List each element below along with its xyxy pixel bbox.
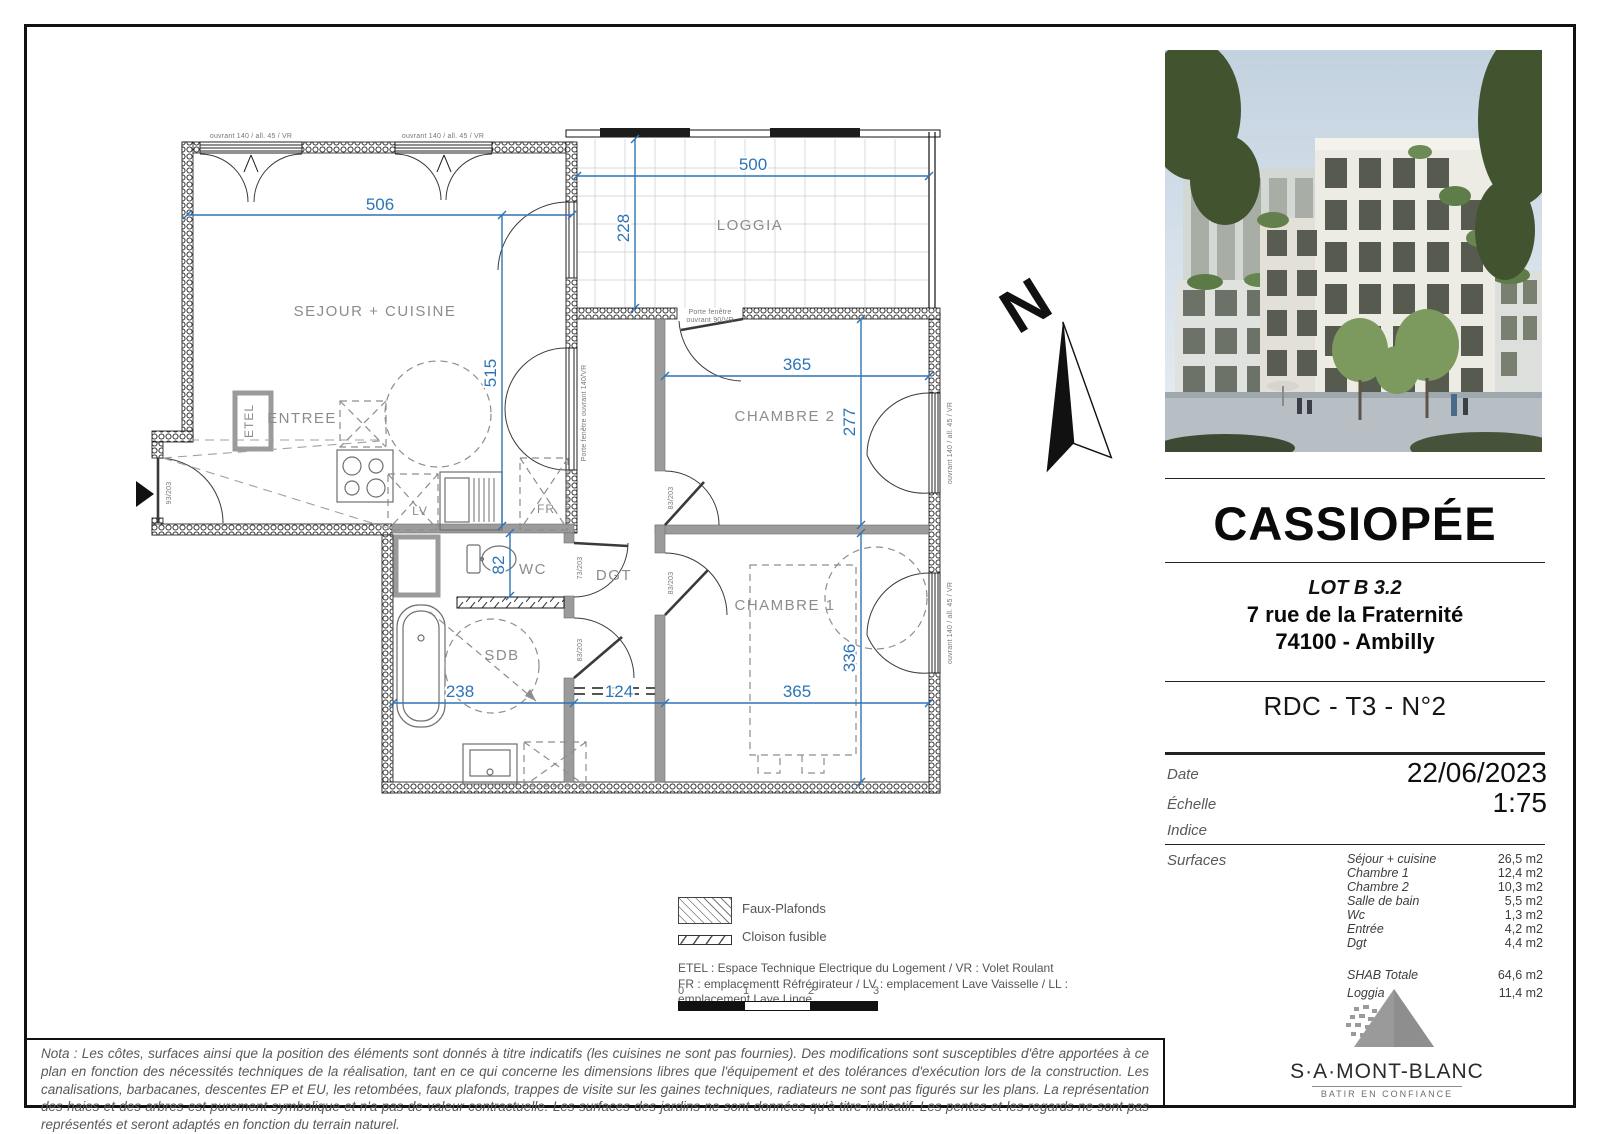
date-label: Date <box>1167 766 1199 783</box>
nota-disclaimer: Nota : Les côtes, surfaces ainsi que la … <box>27 1038 1165 1105</box>
dim-238: 238 <box>446 682 474 701</box>
room-label-entree: ENTREE <box>267 410 337 427</box>
builder-logo: S·A·MONT-BLANC BATIR EN CONFIANCE <box>1267 987 1507 1099</box>
room-label-sejour: SEJOUR + CUISINE <box>294 303 457 320</box>
pf90-label-line2: ouvrant 90/VR <box>686 317 733 324</box>
room-label-sdb: SDB <box>484 647 519 664</box>
room-label-etel: ETEL <box>242 404 256 438</box>
pf90-label-line1: Porte fenêtre <box>688 309 731 316</box>
dim-124: 124 <box>605 682 633 701</box>
divider <box>1165 478 1545 479</box>
divider <box>1165 752 1545 755</box>
lot-number: LOT B 3.2 <box>1165 577 1545 600</box>
room-label-wc: WC <box>519 561 547 578</box>
window-label-1: ouvrant 140 / all. 45 / VR <box>210 133 292 140</box>
dim-336: 336 <box>840 644 859 672</box>
floor-plan: LV FR SEJOUR + CUISIN <box>130 118 960 830</box>
bedroom-furniture <box>750 547 927 773</box>
legend-label: Cloison fusible <box>742 929 827 944</box>
exterior-walls <box>152 142 940 793</box>
legend-item-cloison: Cloison fusible <box>678 927 1138 951</box>
room-label-chambre1: CHAMBRE 1 <box>734 597 835 614</box>
entrance-arrow-icon <box>136 481 154 507</box>
dim-365-ch1: 365 <box>783 682 811 701</box>
scale-bar: 0 1 2 3 <box>678 985 898 1019</box>
dim-365-ch2: 365 <box>783 355 811 374</box>
room-label-loggia: LOGGIA <box>717 217 784 234</box>
index-label: Indice <box>1167 822 1207 839</box>
pf140-label: Porte fenêtre ouvrant 140/VR <box>581 365 588 462</box>
door-size-73: 73/203 <box>577 557 584 580</box>
scale-tick: 2 <box>808 985 814 997</box>
dimension-lines: 506 515 500 228 365 277 82 <box>183 135 933 786</box>
divider <box>1312 1086 1462 1087</box>
surfaces-label: Surfaces <box>1167 852 1226 869</box>
dim-228: 228 <box>614 214 633 242</box>
cloison-swatch-icon <box>678 935 732 945</box>
door-size-83b: 83/203 <box>668 487 675 510</box>
unit-reference: RDC - T3 - N°2 <box>1165 691 1545 722</box>
legend-item-faux-plafonds: Faux-Plafonds <box>678 895 1138 927</box>
door-size-93: 93/203 <box>166 482 173 505</box>
project-title: CASSIOPÉE <box>1165 496 1545 551</box>
divider <box>1165 562 1545 563</box>
scale-label: Échelle <box>1167 796 1216 813</box>
room-label-dgt: DGT <box>596 567 632 584</box>
bathroom-fixtures <box>397 545 586 786</box>
door-size-83c: 83/203 <box>668 572 675 595</box>
interior-doors <box>136 458 727 678</box>
fr-label: FR <box>537 502 555 516</box>
address-line2: 74100 - Ambilly <box>1165 629 1545 655</box>
legend-note-line: ETEL : Espace Technique Electrique du Lo… <box>678 961 1138 977</box>
date-value: 22/06/2023 <box>1407 757 1547 789</box>
dim-506: 506 <box>366 195 394 214</box>
dim-277: 277 <box>840 408 859 436</box>
door-size-83a: 83/203 <box>577 639 584 662</box>
divider <box>1165 844 1545 845</box>
scale-tick: 1 <box>743 985 749 997</box>
entree-dashed-lines <box>163 440 388 528</box>
mountain-logo-icon <box>1332 987 1442 1051</box>
dim-515: 515 <box>481 359 500 387</box>
drawing-sheet: LV FR SEJOUR + CUISIN <box>24 24 1576 1108</box>
window-label-right-1: ouvrant 140 / all. 45 / VR <box>947 402 954 484</box>
scale-value: 1:75 <box>1493 787 1548 819</box>
north-letter: N <box>989 265 1064 347</box>
builder-tagline: BATIR EN CONFIANCE <box>1267 1089 1507 1099</box>
kitchen-fixtures: LV FR <box>337 361 568 530</box>
scale-tick: 0 <box>678 985 684 997</box>
builder-name: S·A·MONT-BLANC <box>1267 1060 1507 1084</box>
scale-bar-graphic <box>678 1001 878 1011</box>
window-label-2: ouvrant 140 / all. 45 / VR <box>402 133 484 140</box>
lv-label: LV <box>412 504 428 518</box>
divider <box>1165 681 1545 682</box>
dim-500: 500 <box>739 155 767 174</box>
hatch-swatch-icon <box>678 897 732 924</box>
legend-label: Faux-Plafonds <box>742 901 826 916</box>
building-render <box>1165 50 1542 452</box>
room-label-chambre2: CHAMBRE 2 <box>734 408 835 425</box>
north-arrow: N <box>985 262 1115 477</box>
window-label-right-2: ouvrant 140 / all. 45 / VR <box>947 582 954 664</box>
address-line1: 7 rue de la Fraternité <box>1165 602 1545 628</box>
dim-82: 82 <box>489 556 508 575</box>
scale-tick: 3 <box>873 985 879 997</box>
